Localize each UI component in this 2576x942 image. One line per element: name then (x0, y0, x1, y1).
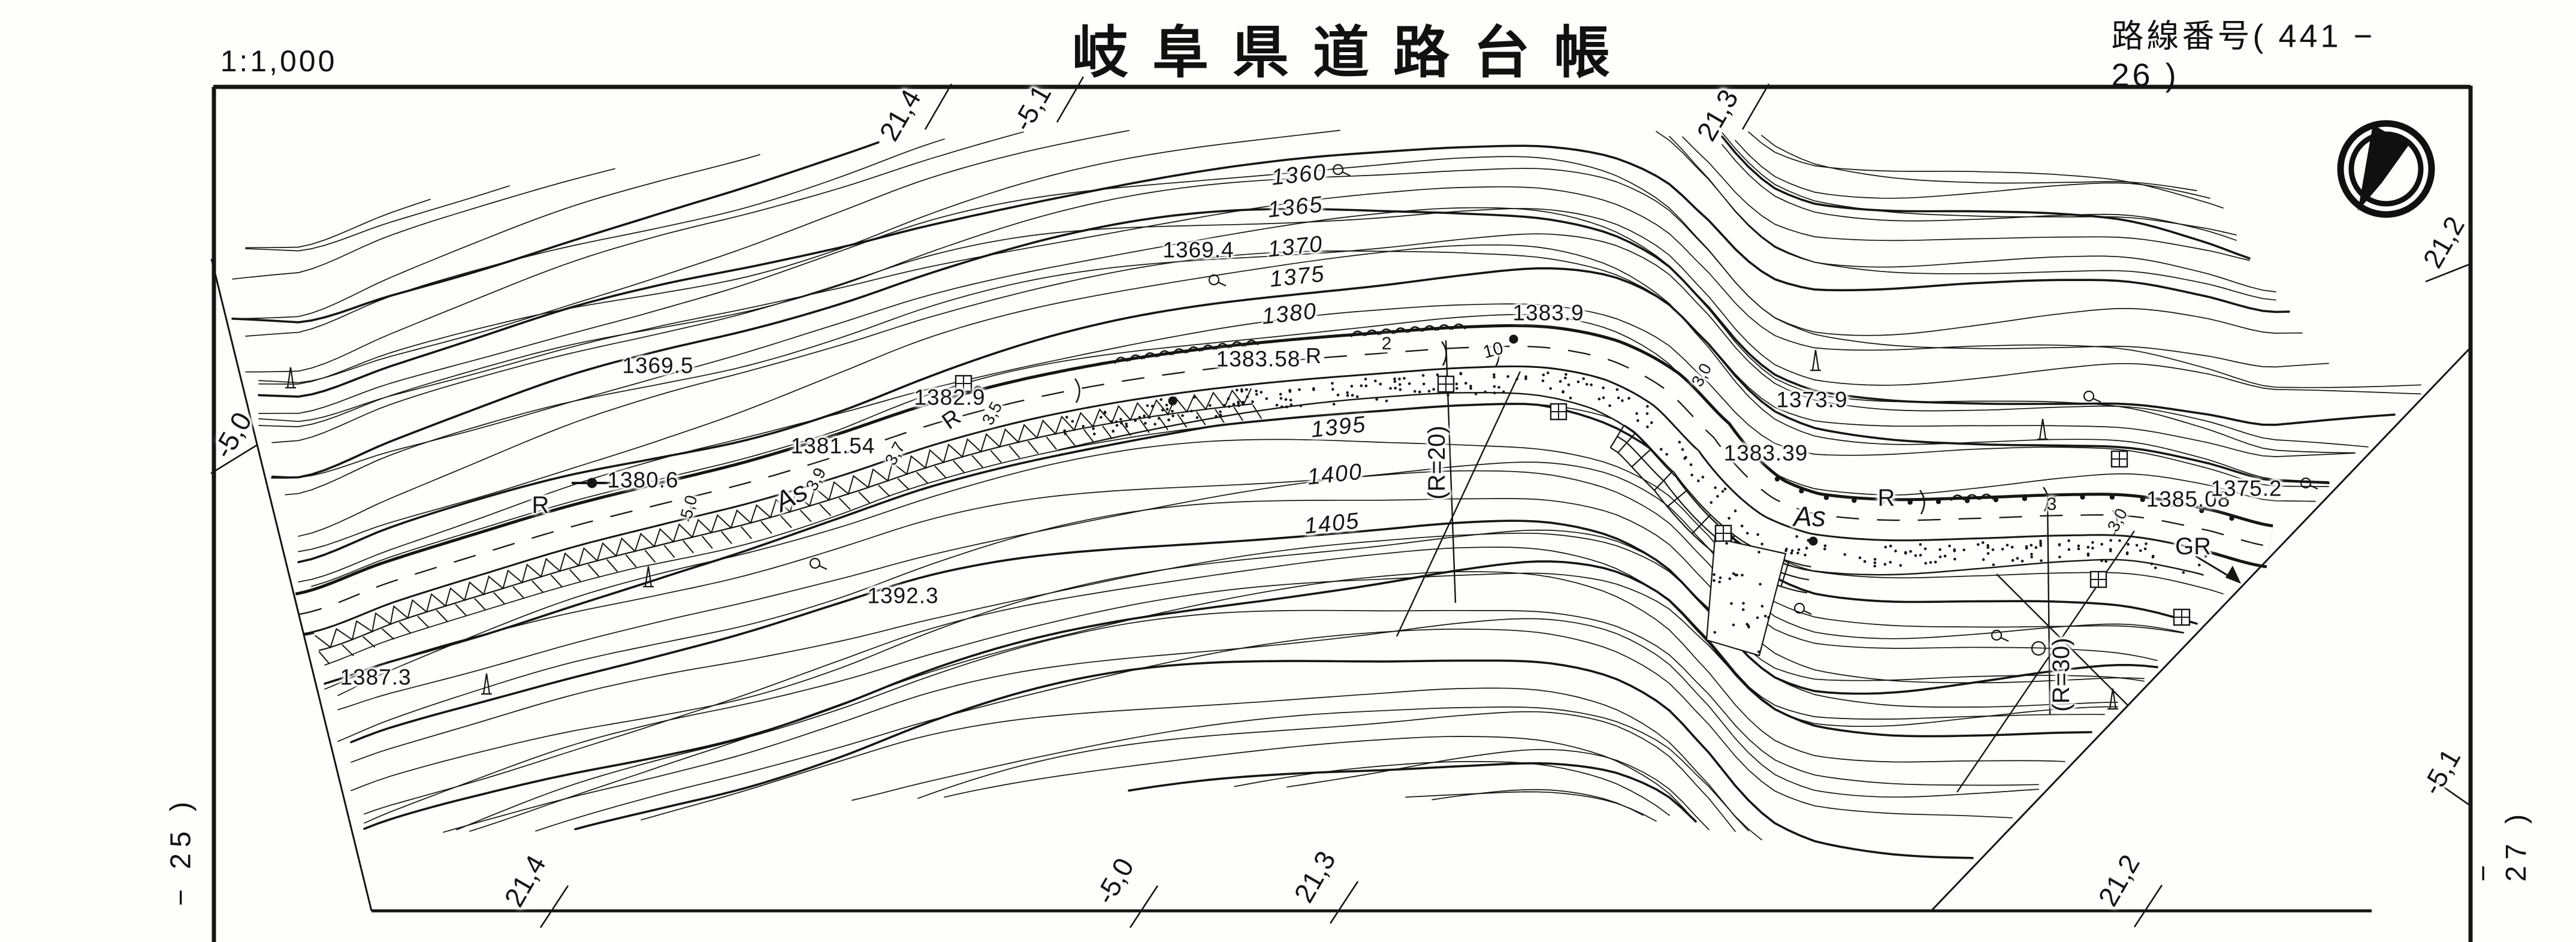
contour-elevation-label: 1395 (1310, 413, 1367, 441)
contour-elevation-label: 1375 (1269, 262, 1326, 291)
contour-elevation-label: 1360 (1270, 161, 1328, 189)
spot-elevation-label: 1375.2 (2210, 478, 2282, 500)
field-grid-icon (2091, 572, 2106, 587)
road-annotation: R (532, 493, 549, 517)
spring-icon (1795, 603, 1811, 614)
road-annotation: R (1306, 345, 1321, 367)
spot-elevation-label: 1381.54 (791, 435, 875, 457)
contour-elevation-label: 1405 (1303, 509, 1361, 538)
survey-point-icon (1809, 537, 1818, 546)
survey-point-icon (1168, 397, 1177, 406)
field-grid-icon (1438, 376, 1454, 392)
survey-point-icon (1509, 335, 1518, 344)
spot-elevation-label: 1380.6 (607, 469, 678, 491)
conifer-tree-icon (1810, 350, 1821, 370)
contour-elevation-label: 1400 (1306, 460, 1364, 488)
compass-icon (2325, 108, 2457, 240)
road-ledger-sheet: 1:1,000 岐阜県道路台帳 路線番号( 441 − 26 ) − 25 ) … (0, 0, 2576, 942)
conifer-tree-icon (481, 674, 492, 694)
spring-icon (2301, 478, 2318, 489)
benchmark-icon (572, 478, 612, 488)
topographic-map-canvas (0, 0, 2576, 942)
adjacent-sheet-left-label: − 25 ) (165, 796, 198, 906)
spot-elevation-label: 1392.3 (867, 585, 938, 607)
map-scale-label: 1:1,000 (221, 44, 337, 78)
adjacent-sheet-right-label: − 27 ) (2467, 806, 2533, 882)
page-title: 岐阜県道路台帳 (1072, 7, 1634, 89)
conifer-tree-icon (2107, 689, 2118, 709)
field-grid-icon (1716, 526, 1731, 541)
road-annotation: As (1793, 503, 1826, 530)
contour-elevation-label: 1380 (1261, 300, 1318, 328)
field-grid-icon (2112, 451, 2127, 467)
road-annotation: (R=30) (2049, 638, 2073, 711)
spring-icon (2084, 391, 2101, 402)
spot-elevation-label: 1369.5 (622, 355, 693, 377)
spring-icon (1209, 275, 1226, 286)
road-annotation: 3 (2047, 496, 2057, 514)
route-number-label: 路線番号( 441 − 26 ) (2112, 10, 2421, 94)
spot-elevation-label: 1369.4 (1162, 239, 1234, 261)
road-annotation: (R=20) (1425, 425, 1449, 499)
contour-elevation-label: 1370 (1267, 233, 1324, 261)
spot-elevation-label: 1373.9 (1776, 389, 1847, 411)
conifer-tree-icon (2037, 419, 2048, 439)
spot-elevation-label: 1387.3 (340, 666, 411, 689)
spring-icon (810, 558, 827, 569)
contour-elevation-label: 1365 (1267, 193, 1324, 221)
spot-elevation-label: 1383.58 (1216, 348, 1301, 370)
field-grid-icon (2174, 609, 2190, 625)
road-annotation: GR (2175, 535, 2211, 558)
road-annotation: 2 (1382, 335, 1392, 353)
field-grid-icon (1551, 404, 1566, 419)
spring-icon (1333, 165, 1350, 176)
spot-elevation-label: 1383.9 (1512, 302, 1584, 324)
conifer-tree-icon (285, 367, 296, 388)
road-annotation: R (1878, 486, 1895, 510)
spot-elevation-label: 1383.39 (1724, 442, 1808, 464)
